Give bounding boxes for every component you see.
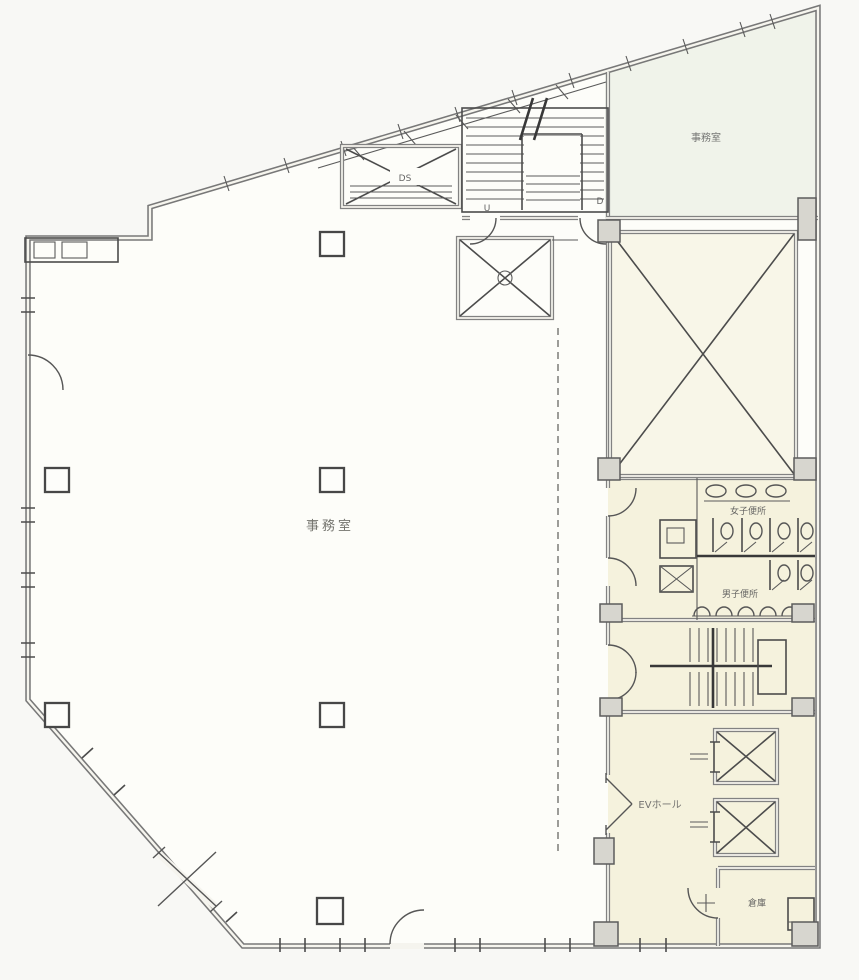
stair-up-mark: U	[484, 204, 491, 214]
ev-hall-label: EVホール	[638, 799, 681, 811]
womens-toilet-label: 女子便所	[730, 505, 766, 517]
ds-label: DS	[399, 174, 412, 184]
floor-plan: DS U D	[0, 0, 859, 980]
stair-down-mark: D	[597, 197, 604, 207]
main-office-label: 事務室	[306, 518, 354, 534]
mens-toilet-label: 男子便所	[722, 588, 758, 600]
storage-label: 倉庫	[748, 897, 766, 909]
floor-plan-drawing: DS U D	[0, 0, 859, 980]
upper-office-label: 事務室	[691, 131, 721, 144]
